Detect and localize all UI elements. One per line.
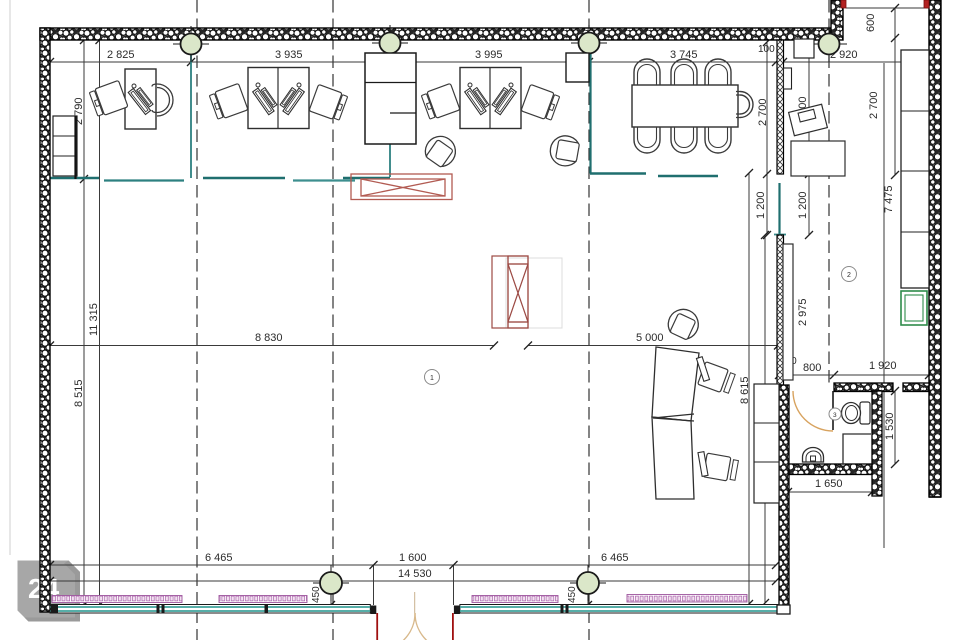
svg-text:2: 2 bbox=[847, 272, 851, 279]
svg-text:2 975: 2 975 bbox=[797, 298, 809, 326]
svg-text:450: 450 bbox=[567, 586, 578, 603]
svg-text:1 200: 1 200 bbox=[797, 191, 809, 219]
svg-text:14 530: 14 530 bbox=[398, 568, 432, 580]
svg-text:7 475: 7 475 bbox=[883, 185, 895, 213]
svg-text:1 650: 1 650 bbox=[815, 478, 843, 490]
svg-text:450: 450 bbox=[311, 586, 322, 603]
svg-text:1: 1 bbox=[430, 375, 434, 382]
svg-text:6 465: 6 465 bbox=[601, 552, 629, 564]
svg-text:11 315: 11 315 bbox=[88, 303, 100, 336]
svg-text:8 515: 8 515 bbox=[73, 379, 85, 407]
svg-text:1 600: 1 600 bbox=[399, 552, 427, 564]
svg-text:3: 3 bbox=[833, 412, 837, 419]
svg-text:8 830: 8 830 bbox=[255, 332, 283, 344]
svg-text:5 000: 5 000 bbox=[636, 332, 664, 344]
svg-text:1 530: 1 530 bbox=[884, 412, 896, 440]
svg-text:8 615: 8 615 bbox=[739, 376, 751, 404]
svg-text:3 935: 3 935 bbox=[275, 49, 303, 61]
svg-text:3 995: 3 995 bbox=[475, 49, 503, 61]
svg-text:6 465: 6 465 bbox=[205, 552, 233, 564]
svg-text:2 700: 2 700 bbox=[868, 91, 880, 119]
svg-text:100: 100 bbox=[758, 44, 775, 55]
svg-text:800: 800 bbox=[803, 362, 821, 374]
svg-text:1 200: 1 200 bbox=[755, 191, 767, 219]
svg-text:1 920: 1 920 bbox=[869, 360, 897, 372]
svg-text:2 825: 2 825 bbox=[107, 49, 135, 61]
svg-text:600: 600 bbox=[865, 14, 877, 32]
svg-text:2 700: 2 700 bbox=[757, 98, 769, 126]
